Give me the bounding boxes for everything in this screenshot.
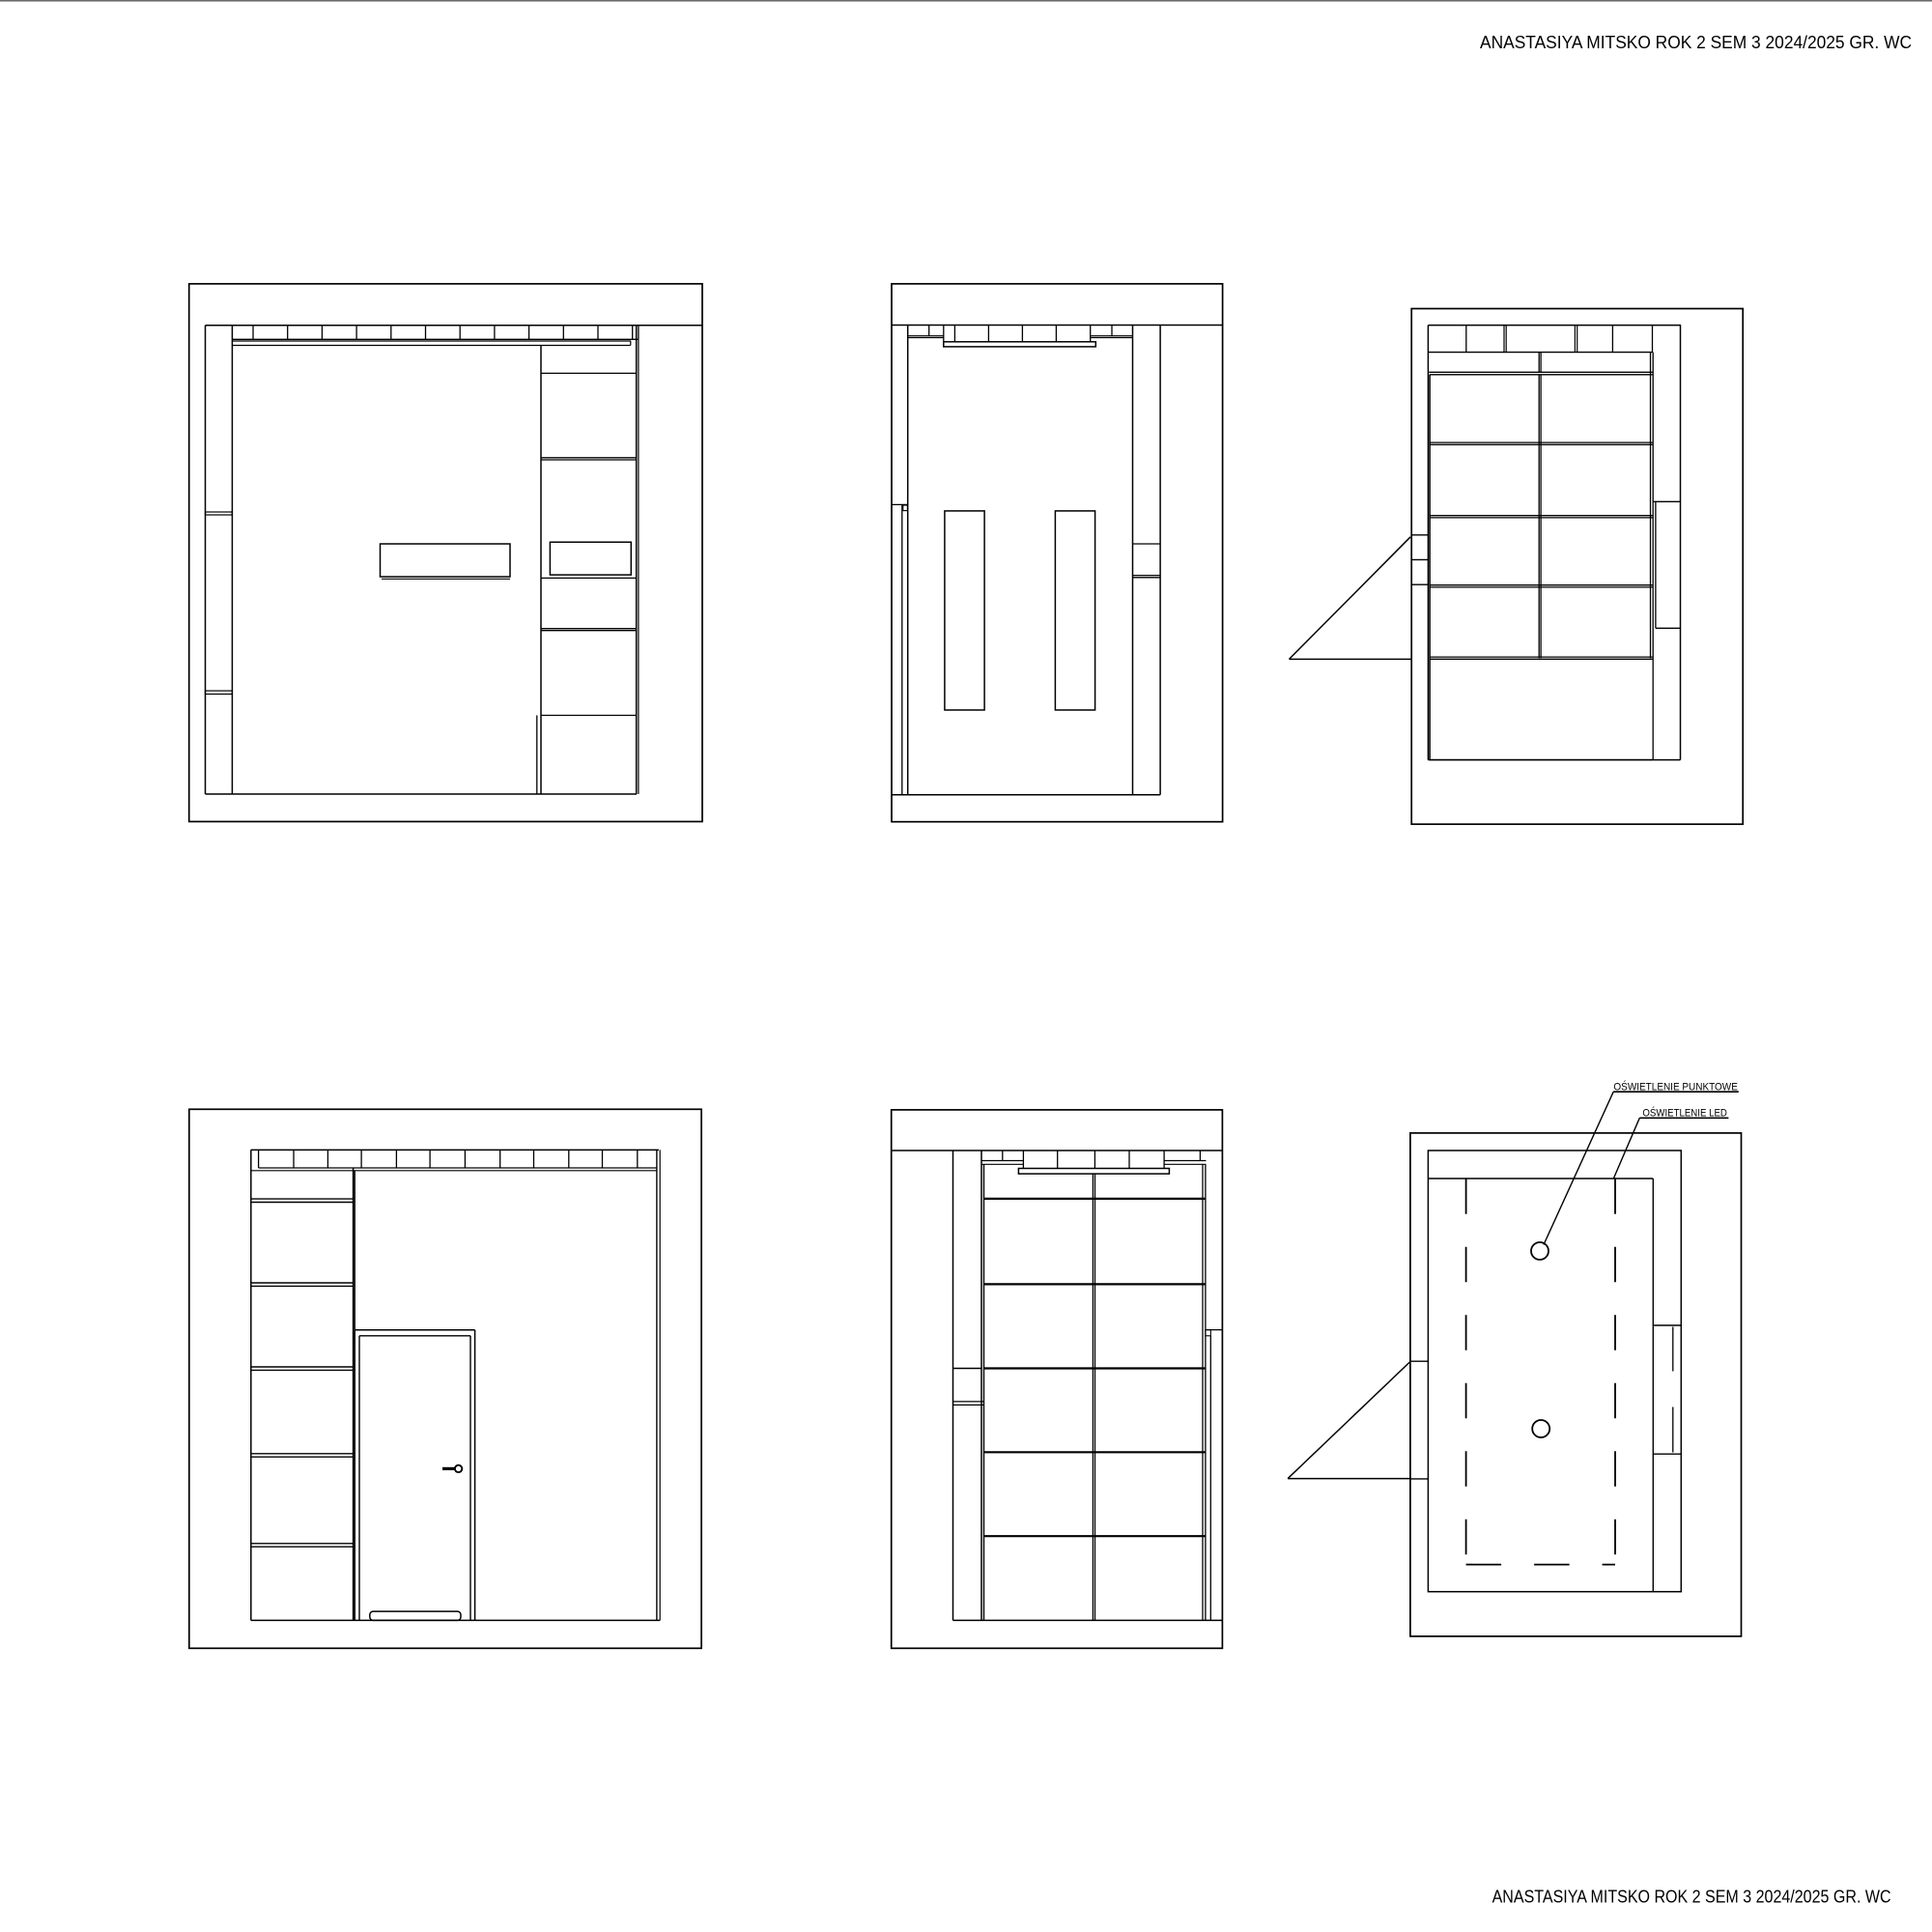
svg-text:ANASTASIYA MITSKO ROK 2 SEM 3: ANASTASIYA MITSKO ROK 2 SEM 3 2024/2025 … bbox=[1492, 1887, 1891, 1906]
svg-text:OŚWIETLENIE LED: OŚWIETLENIE LED bbox=[1642, 1107, 1727, 1120]
svg-text:OŚWIETLENIE PUNKTOWE: OŚWIETLENIE PUNKTOWE bbox=[1613, 1080, 1738, 1093]
svg-text:ANASTASIYA MITSKO ROK 2 SEM 3: ANASTASIYA MITSKO ROK 2 SEM 3 2024/2025 … bbox=[1480, 32, 1912, 52]
